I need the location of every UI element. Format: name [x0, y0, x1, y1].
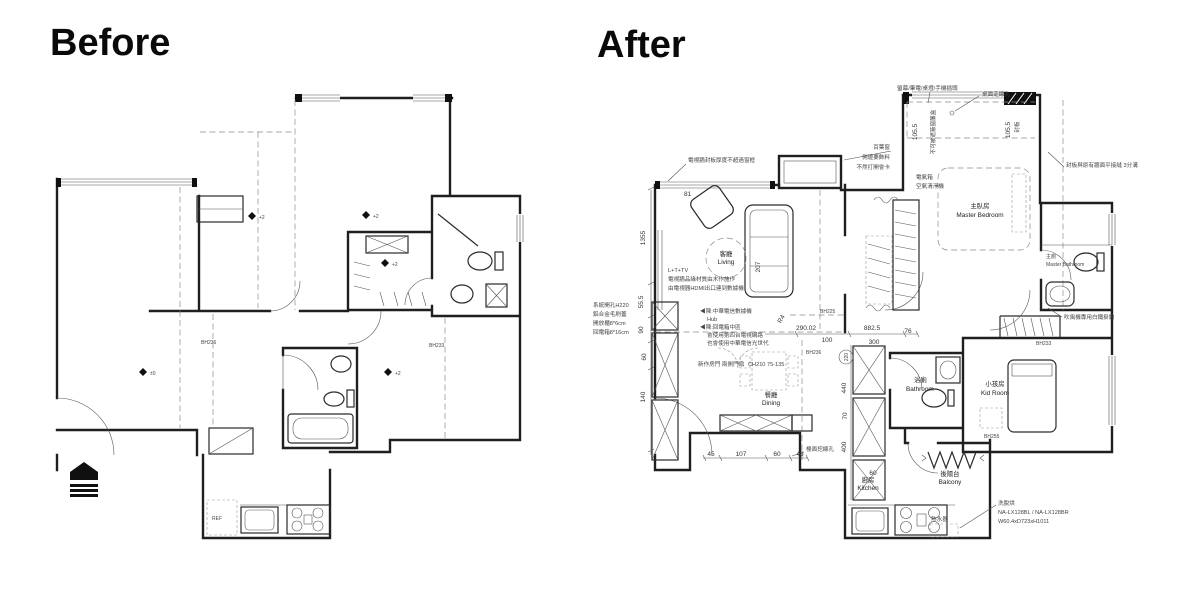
level-label: ±0 — [150, 371, 156, 377]
laundry-rack — [928, 452, 976, 468]
room-dining-en: Dining — [762, 400, 781, 407]
table — [980, 408, 1002, 428]
note-seam: 封板與原有牆面平接縫 3分溝 — [1066, 161, 1138, 169]
toilet — [324, 392, 344, 406]
note-hair: 吹風機專用白鐵掛鉤 — [1064, 313, 1115, 321]
after-kitchen — [848, 346, 955, 535]
note-plug: 螢幕/筆電/桌燈/手機插頭 — [897, 84, 958, 92]
dim-882-5: 882.5 — [864, 325, 881, 332]
room-masterbath-zh: 主廁 — [1046, 253, 1056, 260]
window-end-cap — [445, 94, 452, 102]
note-sys1: 系統開孔H220 — [593, 301, 629, 309]
note-heater: 熱水器 — [931, 515, 948, 523]
before-windows — [56, 93, 525, 242]
room-master-zh: 主臥房 — [970, 201, 989, 210]
dim-48: 48 — [796, 451, 804, 458]
code-bh236: BH236 — [201, 340, 217, 346]
note-washer1: 洗脫烘 — [998, 499, 1015, 507]
tv-cabinet — [658, 230, 662, 310]
dim-105-5-a: 105.5 — [912, 123, 919, 140]
note-hub4: 會使用第四台電視網路 — [707, 331, 763, 339]
room-kitchen-en: Kitchen — [857, 485, 879, 492]
level-label: +2 — [392, 262, 398, 268]
closet-hangers — [1004, 318, 1053, 336]
dim-76: 76 — [904, 328, 912, 335]
shower-screen — [438, 214, 478, 246]
code-bh233: BH233 — [429, 343, 445, 349]
code-bh255: BH255 — [984, 434, 1000, 440]
room-living-zh: 客廳 — [720, 249, 733, 258]
note-sys4: 回電箱8*16cm — [593, 328, 629, 336]
room-bath-en: Bathroom — [906, 386, 934, 393]
dining-table — [752, 352, 786, 390]
note-desk-hole: 桌面走線孔 — [982, 90, 1010, 98]
after-dimension-lines — [648, 187, 919, 461]
cable-hole — [950, 111, 954, 115]
note-blind2: 側邊要飾料 — [862, 153, 890, 161]
note-washer3: W60.4xD723xH1011 — [998, 519, 1049, 525]
dim-140: 140 — [640, 391, 647, 402]
note-hub3: ◀陳:回電箱中區 — [700, 323, 741, 331]
dim-90: 90 — [638, 326, 645, 334]
note-hub2: Hub — [707, 317, 717, 323]
note-fengban: 封板 — [1013, 121, 1021, 133]
before-bathroom2-fixtures — [438, 214, 507, 307]
note-sys2: 鋁合金毛刷蓋 — [593, 310, 627, 318]
note-tv3: 由電視器HDMI出口連到數據機 — [668, 284, 744, 292]
note-hub5: 也會使用中華電信光世代 — [707, 339, 769, 347]
dim-60-left: 60 — [641, 353, 648, 361]
dim-440: 440 — [841, 382, 848, 393]
room-living-en: Living — [718, 259, 735, 266]
after-kid-furniture — [980, 318, 1056, 432]
room-kid-en: Kid Room — [981, 390, 1009, 397]
dim-r4: R4 — [777, 314, 787, 325]
code-bh225: BH225 — [820, 309, 836, 315]
wardrobe-dashed — [866, 236, 892, 304]
before-bathroom1-fixtures — [288, 356, 354, 443]
dim-400: 400 — [841, 441, 848, 452]
sofa — [745, 205, 793, 297]
dim-207: 207 — [755, 261, 762, 272]
before-title: Before — [50, 22, 170, 65]
wardrobe — [893, 200, 919, 310]
room-balcony-zh: 後陽台 — [940, 469, 959, 478]
code-bh233: BH233 — [1036, 341, 1052, 347]
code-bh236: BH236 — [806, 350, 822, 356]
level-label: +2 — [395, 371, 401, 377]
note-door2: CH210 75-135 — [748, 362, 784, 368]
window-end-cap — [295, 94, 302, 102]
sideboard — [720, 415, 792, 431]
bed — [1008, 360, 1056, 432]
dim-220: 220 — [844, 353, 850, 362]
armchair — [688, 183, 735, 230]
room-master-en: Master Bedroom — [956, 212, 1003, 219]
after-room-labels: 客廳 Living 餐廳 Dining 主臥房 Master Bedroom 主… — [718, 201, 1085, 492]
note-door1: 新作房門 兩側門扇 — [698, 360, 745, 368]
note-tv1: L+T+TV — [668, 268, 688, 274]
floorplan-comparison: Before After — [0, 0, 1200, 602]
note-tv-board: 電視牆封板厚度不超過窗框 — [688, 156, 756, 164]
note-tv2: 電視牆品緣材質由木作施作 — [668, 275, 736, 283]
dim-300: 300 — [869, 339, 880, 346]
rug — [706, 238, 746, 278]
after-master-furniture — [866, 111, 1030, 311]
before-kitchen: REF — [207, 428, 330, 535]
pillow — [1012, 174, 1026, 232]
fridge-label: REF — [212, 516, 222, 522]
after-title: After — [597, 24, 686, 67]
before-level-markers: +2 +2 +2 +2 ±0 — [139, 211, 401, 377]
dim-1355: 1355 — [640, 230, 647, 245]
before-walls — [57, 98, 520, 538]
room-dining-zh: 餐廳 — [765, 390, 778, 399]
dim-55-5: 55.5 — [638, 295, 645, 308]
note-sys3: 開放櫃8*6cm — [593, 319, 626, 327]
before-dashed-lines — [180, 100, 445, 438]
note-blind3: 不然打開會卡 — [856, 163, 890, 171]
before-wardrobe — [354, 236, 426, 306]
dim-70: 70 — [842, 412, 849, 420]
room-kid-zh: 小孩房 — [985, 379, 1004, 388]
dim-290-02: 290.02 — [796, 325, 816, 332]
room-balcony-en: Balcony — [939, 479, 963, 486]
note-elec2: 空氣清淨機 — [916, 182, 944, 190]
after-balcony — [922, 452, 996, 537]
dim-60-kitchen: 60 — [869, 470, 877, 477]
sink — [331, 356, 351, 372]
dim-81: 81 — [684, 191, 692, 198]
sink — [451, 285, 473, 303]
bathtub — [288, 414, 353, 443]
after-floorplan: 客廳 Living 餐廳 Dining 主臥房 Master Bedroom 主… — [585, 80, 1145, 580]
note-elec1: 電氣箱 — [916, 173, 933, 181]
note-hub1: ◀陳:中華電信數據機 — [700, 307, 752, 315]
note-curtain: 不可被遮蔽窗簾盒 — [929, 109, 937, 154]
level-label: +2 — [259, 215, 265, 221]
dim-45: 45 — [707, 451, 715, 458]
dim-60-bottom: 60 — [773, 451, 781, 458]
after-annotations: 螢幕/筆電/桌燈/手機插頭 桌面走線孔 電視牆封板厚度不超過窗框 百葉窗 側邊要… — [593, 84, 1138, 525]
after-bath-fixtures — [922, 357, 960, 407]
entrance-symbol — [70, 462, 98, 497]
dim-100: 100 — [822, 337, 833, 344]
dim-107: 107 — [736, 451, 747, 458]
note-washer2: NA-LX128BL / NA-LX128BR — [998, 510, 1069, 516]
after-dimensions: 1355 55.5 90 60 140 45 107 60 48 290.02 … — [638, 121, 1012, 477]
room-bath-zh: 浴廁 — [914, 375, 927, 384]
note-blind1: 百葉窗 — [873, 143, 890, 151]
note-counter-hole: 檯面挖線孔 — [806, 445, 834, 453]
toilet — [468, 252, 492, 270]
dim-105-5-b: 105.5 — [1005, 121, 1012, 138]
before-floorplan: REF +2 +2 +2 +2 ±0 BH236 BH233 — [40, 85, 540, 560]
room-masterbath-en: Master Bathroom — [1046, 262, 1084, 268]
level-label: +2 — [373, 214, 379, 220]
